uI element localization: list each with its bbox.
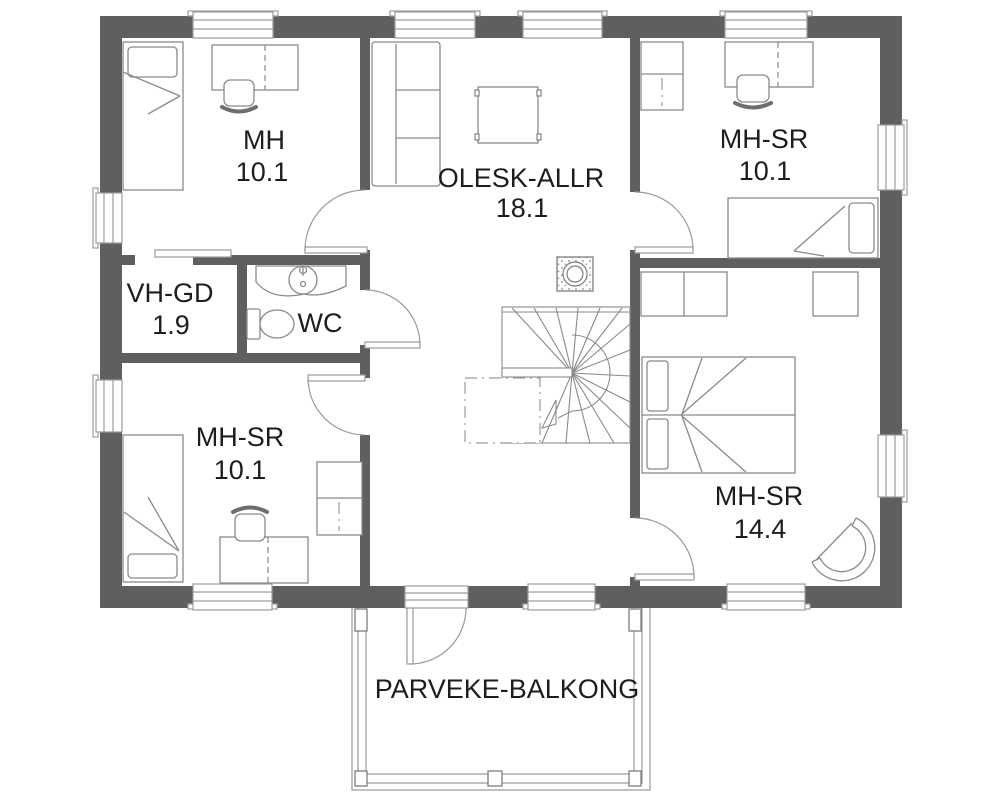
interior-wall	[630, 250, 640, 518]
room-area-mh-sr-ne: 10.1	[739, 156, 792, 186]
window	[93, 188, 122, 248]
window	[878, 120, 907, 195]
corner-armchair	[812, 518, 875, 581]
floor-plan-page: MH 10.1 OLESK-ALLR 18.1 MH-SR 10.1 VH-GD…	[0, 0, 1000, 800]
room-area-mh-sr-sw: 10.1	[214, 455, 267, 485]
stair-opening-outline	[465, 378, 540, 443]
toilet	[247, 309, 294, 339]
railing-post	[629, 609, 641, 631]
door-wc	[365, 290, 420, 348]
single-bed	[123, 42, 183, 190]
sliding-door-vh-gd	[155, 250, 231, 257]
sofa	[372, 42, 440, 186]
room-label-mh-sr-se: MH-SR	[715, 481, 804, 511]
window	[878, 430, 907, 502]
washbasin	[256, 264, 346, 296]
wardrobe	[813, 272, 858, 316]
window	[188, 11, 278, 38]
interior-wall	[360, 250, 370, 290]
room-area-mh-sr-se: 14.4	[734, 514, 787, 544]
chimney-flue	[557, 257, 593, 291]
floor-plan-drawing: MH 10.1 OLESK-ALLR 18.1 MH-SR 10.1 VH-GD…	[0, 0, 1000, 800]
room-label-mh-sr-ne: MH-SR	[720, 124, 809, 154]
window	[93, 375, 122, 437]
interior-wall	[122, 353, 360, 363]
desk-chair	[735, 75, 771, 108]
railing-post	[488, 771, 502, 786]
door-mh-sr-sw	[308, 375, 365, 435]
wardrobe	[641, 42, 683, 110]
room-olesk-furniture	[372, 42, 630, 443]
balcony-door	[405, 586, 468, 664]
room-label-mh: MH	[243, 125, 285, 155]
room-area-olesk: 18.1	[496, 193, 549, 223]
room-label-olesk: OLESK-ALLR	[438, 163, 605, 193]
window	[390, 11, 480, 38]
room-label-mh-sr-sw: MH-SR	[196, 422, 285, 452]
interior-wall	[360, 38, 370, 190]
interior-wall	[360, 345, 370, 378]
desk-chair	[233, 508, 267, 542]
door-mh	[305, 190, 367, 253]
single-bed	[728, 198, 878, 258]
window	[188, 584, 277, 610]
room-label-vh-gd: VH-GD	[127, 278, 214, 308]
wardrobe	[317, 462, 362, 535]
interior-wall	[630, 38, 640, 192]
window	[722, 584, 810, 610]
room-area-mh: 10.1	[236, 157, 289, 187]
interior-wall	[237, 265, 247, 353]
desk	[220, 537, 308, 583]
staircase	[465, 307, 630, 443]
stair-handrail	[502, 368, 572, 377]
railing-post	[355, 609, 367, 631]
interior-wall	[640, 258, 880, 268]
railing-post	[355, 771, 367, 786]
exterior-wall-left	[100, 16, 122, 608]
door-mh-sr-se	[635, 518, 694, 580]
wardrobe	[641, 272, 727, 316]
door-mh-sr-ne	[635, 192, 693, 253]
window	[720, 11, 812, 38]
interior-wall	[122, 255, 135, 265]
window	[518, 11, 607, 38]
exterior-wall-right	[880, 16, 902, 608]
double-bed	[642, 357, 795, 473]
room-label-balcony: PARVEKE-BALKONG	[375, 674, 640, 704]
desk-chair	[222, 80, 256, 112]
room-label-wc: WC	[298, 308, 343, 338]
window	[523, 584, 600, 610]
coffee-table	[475, 87, 541, 143]
railing-post	[629, 771, 641, 786]
room-area-vh-gd: 1.9	[152, 310, 190, 340]
single-bed	[123, 435, 183, 582]
